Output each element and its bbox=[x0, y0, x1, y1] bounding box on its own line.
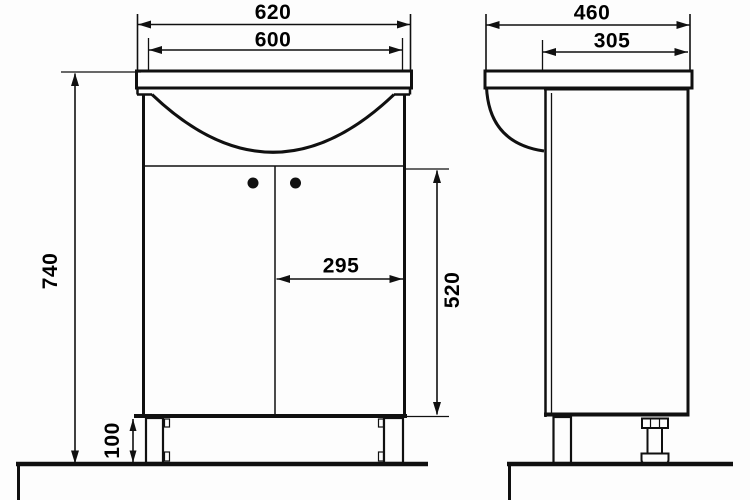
arrow-left-icon bbox=[149, 46, 162, 54]
dimension-overall-height: 740 bbox=[39, 72, 141, 464]
side-view bbox=[485, 71, 733, 500]
front-plinth-clip-right-top bbox=[379, 419, 384, 427]
arrow-up-icon bbox=[71, 73, 79, 86]
front-plinth-clip-left-top bbox=[165, 419, 170, 427]
dim-600-label: 600 bbox=[255, 29, 292, 52]
arrow-left-icon bbox=[543, 48, 556, 56]
front-view bbox=[16, 71, 428, 500]
arrow-left-icon bbox=[277, 275, 290, 283]
dim-740-label: 740 bbox=[39, 253, 62, 290]
foot-nut bbox=[642, 419, 668, 429]
front-door-knob-right bbox=[290, 178, 301, 189]
arrow-right-icon bbox=[390, 275, 403, 283]
arrow-right-icon bbox=[677, 21, 690, 29]
arrow-up-icon bbox=[433, 170, 441, 183]
dim-620-label: 620 bbox=[255, 1, 292, 24]
arrow-left-icon bbox=[138, 21, 151, 29]
vanity-technical-drawing: 620 600 460 305 bbox=[0, 0, 750, 500]
dimension-front-cabinet-width: 600 bbox=[149, 29, 403, 71]
side-basin-slab bbox=[485, 71, 692, 88]
drawing-canvas: 620 600 460 305 bbox=[0, 0, 750, 500]
dim-305-label: 305 bbox=[594, 30, 631, 53]
arrow-left-icon bbox=[487, 21, 500, 29]
front-basin-curve bbox=[152, 95, 394, 153]
dimension-side-overall-depth: 460 bbox=[486, 2, 690, 72]
dimension-door-width: 295 bbox=[277, 255, 404, 284]
front-plinth-clip-right-bottom bbox=[379, 452, 384, 461]
arrow-right-icon bbox=[397, 21, 410, 29]
front-plinth-clip-left-bottom bbox=[165, 452, 170, 461]
foot-shaft bbox=[648, 428, 663, 454]
dimension-door-height: 520 bbox=[406, 169, 464, 417]
front-basin-slab bbox=[137, 71, 412, 88]
side-front-leg bbox=[554, 417, 572, 463]
dim-460-label: 460 bbox=[574, 2, 611, 25]
arrow-down-icon bbox=[433, 402, 441, 415]
dimension-plinth-height: 100 bbox=[101, 419, 137, 463]
arrow-down-icon bbox=[71, 451, 79, 464]
arrow-right-icon bbox=[675, 48, 688, 56]
front-door-knob-left bbox=[248, 178, 259, 189]
dim-100-label: 100 bbox=[101, 422, 124, 459]
dim-295-label: 295 bbox=[323, 255, 360, 278]
arrow-right-icon bbox=[389, 46, 402, 54]
side-adjustable-foot bbox=[642, 419, 669, 465]
front-leg-left bbox=[146, 418, 163, 463]
dim-520-label: 520 bbox=[441, 272, 464, 309]
arrow-down-icon bbox=[130, 451, 137, 463]
side-basin-curve bbox=[487, 87, 545, 151]
front-leg-right bbox=[384, 418, 403, 463]
dimension-side-cabinet-depth: 305 bbox=[543, 30, 689, 72]
arrow-up-icon bbox=[130, 419, 137, 431]
